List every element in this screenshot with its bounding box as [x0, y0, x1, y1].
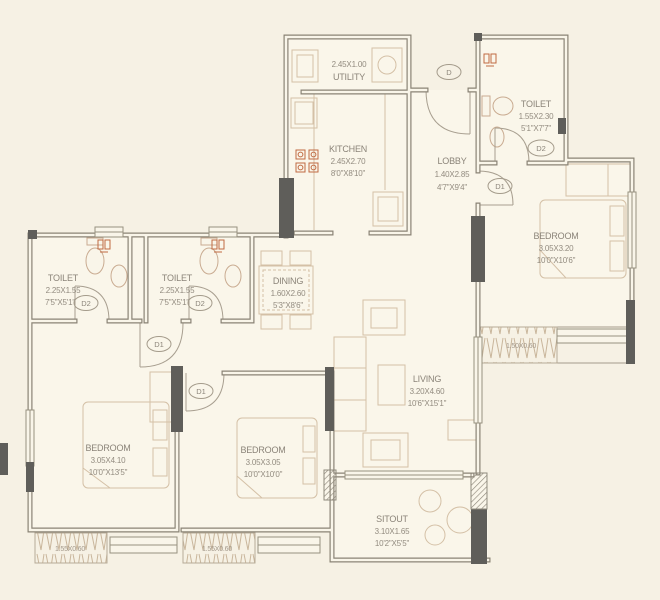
room-label-bedroom-left: BEDROOM 3.05X4.10 10'0"X13'5": [85, 443, 130, 477]
bedroom-middle-size: 3.05X3.05: [246, 458, 281, 467]
dining-size-ft: 5'3"X8'6": [273, 301, 303, 310]
room-label-bedroom-middle: BEDROOM 3.05X3.05 10'0"X10'0": [240, 445, 285, 479]
washbasin-icon: [111, 265, 127, 287]
room-label-bedroom-right: BEDROOM 3.05X3.20 10'0"X10'6": [533, 231, 578, 265]
kitchen-name: KITCHEN: [329, 144, 367, 154]
floor-plan: 2.45X1.00 UTILITY KITCHEN 2.45X2.70 8'0"…: [0, 0, 660, 600]
room-label-kitchen: KITCHEN 2.45X2.70 8'0"X8'10": [329, 144, 367, 178]
room-label-living: LIVING 3.20X4.60 10'6"X15'1": [408, 374, 447, 408]
living-size-ft: 10'6"X15'1": [408, 399, 447, 408]
window: [628, 192, 636, 268]
hatched-column: [324, 470, 336, 500]
window: [26, 410, 34, 466]
window: [345, 471, 463, 479]
hatched-column: [471, 473, 487, 509]
toilet-top-name: TOILET: [521, 99, 552, 109]
room-label-toilet-top: TOILET 1.55X2.30 5'1"X7'7": [519, 99, 554, 133]
wc-icon: [200, 238, 218, 274]
bedroom-right-name: BEDROOM: [533, 231, 578, 241]
door-tag-toilet-2-label: D2: [195, 299, 205, 308]
door-tag-toilet-top-label: D2: [536, 144, 546, 153]
lobby-size: 1.40X2.85: [435, 170, 470, 179]
bedroom-left-size: 3.05X4.10: [91, 456, 126, 465]
living-name: LIVING: [413, 374, 442, 384]
bedroom-right-size-ft: 10'0"X10'6": [537, 256, 576, 265]
window: [474, 337, 482, 423]
floor-plan-drawing: 2.45X1.00 UTILITY KITCHEN 2.45X2.70 8'0"…: [0, 0, 660, 600]
toilet-2-size: 2.25X1.55: [160, 286, 195, 295]
door-tag-toilet-1-label: D2: [81, 299, 91, 308]
dining-name: DINING: [273, 276, 303, 286]
wc-icon: [482, 96, 513, 116]
sitout-name: SITOUT: [376, 514, 408, 524]
door-tag-bedroom-right-label: D1: [495, 182, 505, 191]
vent-window: [95, 227, 123, 237]
bedroom-left-size-ft: 10'0"X13'5": [89, 468, 128, 477]
toilet-2-size-ft: 7'5"X5'1": [159, 298, 189, 307]
living-size: 3.20X4.60: [410, 387, 445, 396]
lobby-name: LOBBY: [437, 156, 466, 166]
toilet-2-name: TOILET: [162, 273, 193, 283]
bedroom-left-name: BEDROOM: [85, 443, 130, 453]
bedroom-middle-size-ft: 10'0"X10'0": [244, 470, 283, 479]
room-label-sitout: SITOUT 3.10X1.65 10'2"X5'5": [375, 514, 410, 548]
toilet-top-size-ft: 5'1"X7'7": [521, 124, 551, 133]
toilet-1-size: 2.25X1.55: [46, 286, 81, 295]
kitchen-size-ft: 8'0"X8'10": [331, 169, 366, 178]
sitout-size-ft: 10'2"X5'5": [375, 539, 410, 548]
door-tag-bedroom-left-label: D1: [154, 340, 164, 349]
lobby-size-ft: 4'7"X9'4": [437, 183, 467, 192]
bedroom-right-size: 3.05X3.20: [539, 244, 574, 253]
toilet-top-size: 1.55X2.30: [519, 112, 554, 121]
ledge-bottom-middle-size: 1.55X0.60: [202, 546, 232, 553]
bedroom-middle-name: BEDROOM: [240, 445, 285, 455]
balcony-right-size: 1.50X0.60: [506, 343, 536, 350]
washbasin-icon: [225, 265, 241, 287]
sitout-size: 3.10X1.65: [375, 527, 410, 536]
door-tag-bedroom-middle-label: D1: [196, 387, 206, 396]
toilet-1-name: TOILET: [48, 273, 79, 283]
ledge-bottom-left-size: 1.55X0.60: [55, 546, 85, 553]
vent-window: [209, 227, 237, 237]
kitchen-size: 2.45X2.70: [331, 157, 366, 166]
wc-icon: [86, 238, 104, 274]
utility-name: UTILITY: [333, 72, 365, 82]
room-label-dining: DINING 1.60X2.60 5'3"X8'6": [271, 276, 306, 310]
dining-size: 1.60X2.60: [271, 289, 306, 298]
room-label-lobby: LOBBY 1.40X2.85 4'7"X9'4": [435, 156, 470, 192]
toilet-1-size-ft: 7'5"X5'1": [45, 298, 75, 307]
washbasin-icon: [490, 127, 504, 147]
door-tag-main-label: D: [446, 68, 452, 77]
utility-size: 2.45X1.00: [332, 60, 367, 69]
